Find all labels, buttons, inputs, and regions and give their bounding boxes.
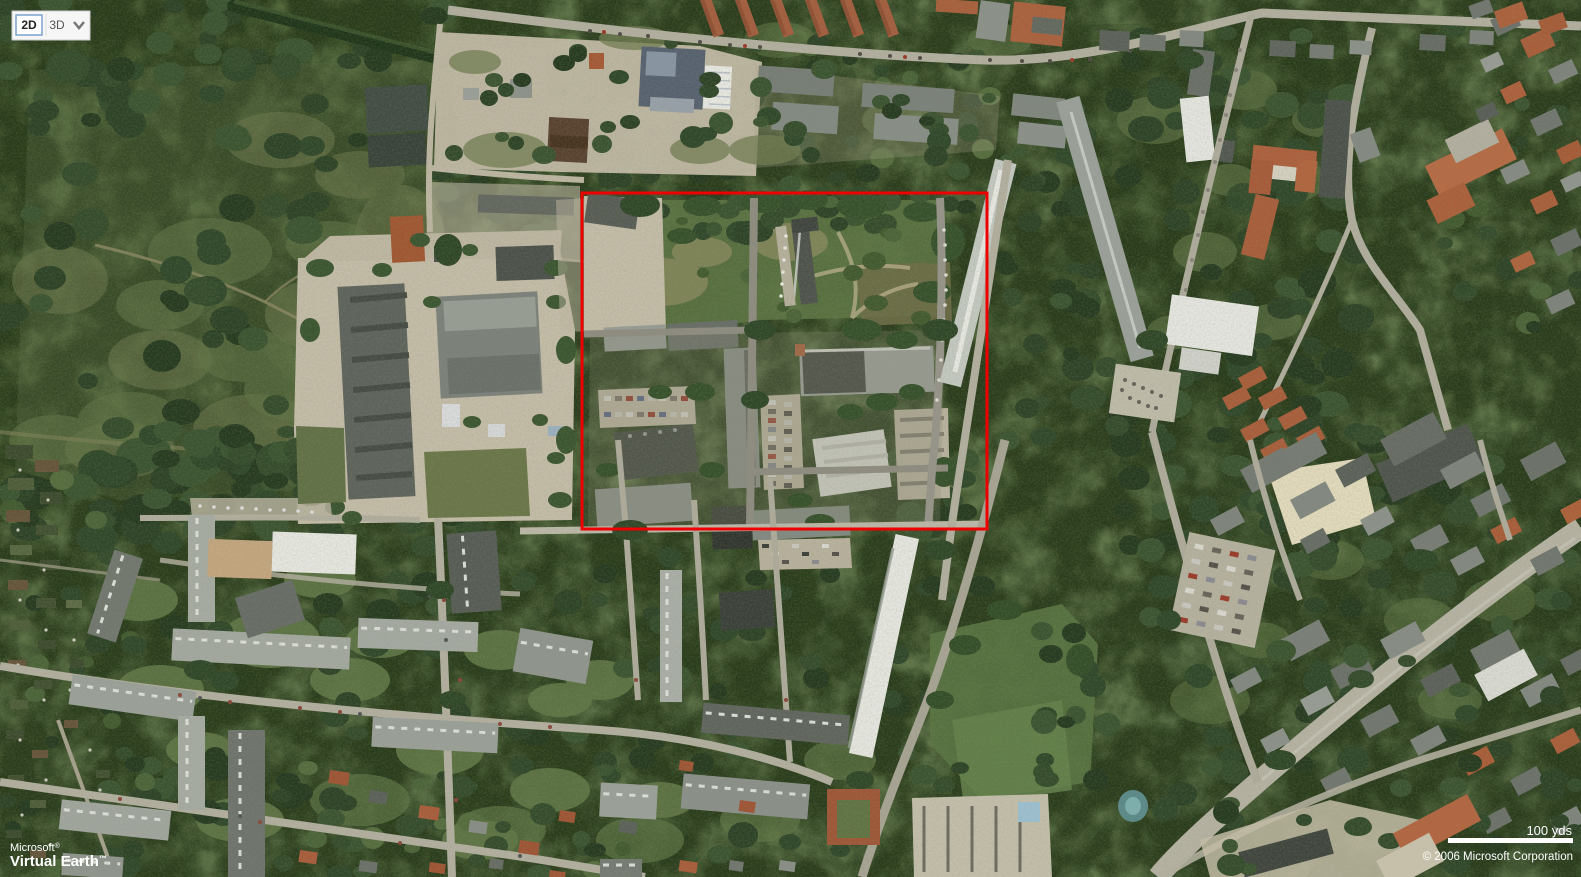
svg-text:100 yds: 100 yds: [1526, 823, 1572, 838]
svg-text:3D: 3D: [49, 18, 65, 32]
svg-text:© 2006 Microsoft Corporation: © 2006 Microsoft Corporation: [1423, 851, 1573, 863]
svg-text:Virtual Earth™: Virtual Earth™: [10, 853, 107, 870]
svg-text:2D: 2D: [21, 18, 37, 32]
